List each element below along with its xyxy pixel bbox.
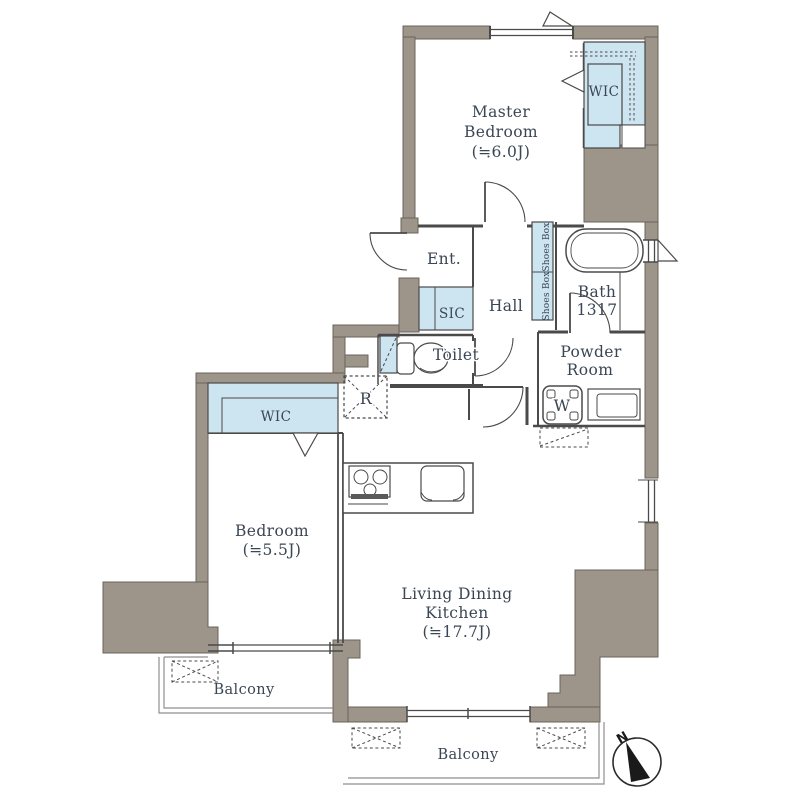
wall-bottom-band-left [341, 707, 407, 722]
label-ldk-size: (≒17.7J) [422, 623, 491, 641]
toilet-door-arc [475, 338, 513, 376]
floor-plan: N Master Bedroom (≒6.0J) WIC Ent. SIC Ha… [0, 0, 800, 800]
label-balcony-west: Balcony [213, 682, 275, 698]
wall-bottom-right-mass [548, 570, 658, 707]
stove-base [351, 494, 388, 499]
label-toilet: Toilet [433, 346, 480, 364]
window-bedroom [233, 645, 330, 651]
wall-bottom-left-mass [103, 582, 218, 653]
label-wic-bedroom: WIC [261, 409, 292, 425]
ac-unit-south-left [352, 728, 400, 748]
window-ldk-south-ticks [407, 706, 530, 722]
label-master-bedroom-1: Master [472, 103, 530, 121]
window-bath-ticks [643, 240, 658, 262]
ac-unit-west [172, 661, 218, 682]
label-ent: Ent. [427, 250, 461, 268]
ac-unit-south-right [537, 728, 585, 748]
ac-unit-cross [172, 661, 218, 682]
label-hall: Hall [489, 297, 523, 315]
wic-bedroom-folding-door [293, 433, 318, 456]
label-powder-2: Room [567, 361, 614, 379]
label-shoes-box-upper: Shoes Box [542, 222, 552, 271]
compass: N [613, 729, 661, 786]
wic-master-niche [622, 125, 645, 148]
window-bath [649, 240, 655, 262]
label-master-bedroom-2: Bedroom [464, 123, 538, 141]
washer-clearance-diagonal [540, 429, 588, 446]
label-ldk-2: Kitchen [425, 604, 488, 622]
label-wic-master: WIC [589, 84, 620, 100]
label-powder-1: Powder [560, 343, 621, 361]
label-master-bedroom-size: (≒6.0J) [472, 143, 531, 161]
master-door-arc [485, 182, 525, 222]
label-sic: SIC [439, 306, 465, 322]
wall-entrance-stub [401, 218, 418, 233]
wall-left-master [403, 37, 415, 226]
wall-left-bedroom [196, 373, 208, 583]
label-balcony-south: Balcony [437, 747, 499, 763]
floor-plan-svg: N Master Bedroom (≒6.0J) WIC Ent. SIC Ha… [0, 0, 800, 800]
label-bedroom-size: (≒5.5J) [243, 541, 302, 559]
wall-wic-bedroom-top [196, 373, 345, 383]
label-bath: Bath [578, 283, 616, 301]
window-ldk-east [649, 480, 655, 522]
wall-bottom-band-right [530, 707, 600, 722]
entrance-door-arc [370, 233, 407, 270]
window-bath-flap [658, 240, 677, 261]
label-shoes-box-lower: Shoes Box [542, 271, 552, 320]
label-refrigerator: R [360, 389, 373, 408]
wic-master-door-flap [562, 70, 584, 92]
wall-right-bath-upper [645, 222, 658, 240]
label-bedroom: Bedroom [235, 522, 309, 540]
window-top-flap [543, 12, 572, 26]
wall-toilet-stub [345, 355, 368, 367]
hall-ldk-door-arc [483, 387, 523, 427]
wall-right-mid [645, 262, 658, 478]
label-ldk-1: Living Dining [401, 585, 512, 603]
wic-bedroom-area [208, 383, 338, 433]
partition-bedroom-south [208, 645, 343, 651]
label-bath-size: 1317 [576, 301, 617, 319]
washer-clearance-box [540, 428, 588, 447]
wall-entrance-lower [399, 278, 419, 332]
label-washer: W [554, 396, 571, 415]
wall-wic-south-mass [584, 145, 658, 222]
window-bedroom-ticks [233, 642, 330, 654]
ac-unit-cross [537, 728, 585, 748]
ac-unit-cross [352, 728, 400, 748]
wall-right-lower [645, 523, 658, 570]
window-top-gap [490, 26, 573, 39]
bathtub [566, 229, 643, 272]
toilet-tank [397, 343, 414, 374]
wall-top-left [403, 26, 490, 39]
